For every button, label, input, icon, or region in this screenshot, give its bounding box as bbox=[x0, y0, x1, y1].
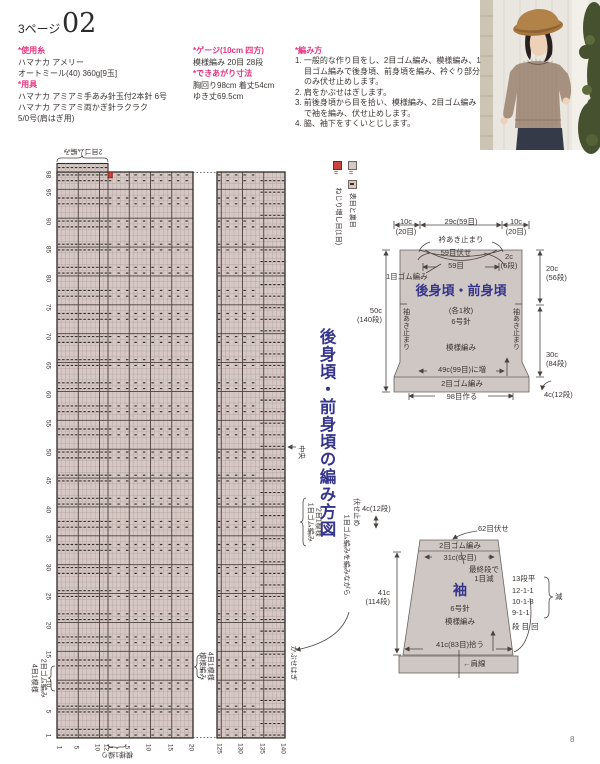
body-width-left: 10c bbox=[392, 217, 420, 226]
sleeve-dec-row: 10-1-8 bbox=[512, 597, 534, 606]
chart-axis-number: 1 bbox=[56, 738, 63, 756]
chart-axis-number: 1 bbox=[107, 738, 114, 756]
sleeve-title: 袖 bbox=[448, 585, 472, 596]
sleeve-height: 41c (114段) bbox=[354, 588, 390, 606]
chart-axis-number: 5 bbox=[73, 738, 80, 756]
body-armhole-left: 袖あき止まり bbox=[401, 308, 410, 350]
chart-axis-number: 80 bbox=[45, 270, 52, 288]
legend-increase-label: ねじり増し目(1目) bbox=[333, 179, 342, 253]
howto-step: 4. 脇、袖下をすくいとじします。 bbox=[295, 119, 481, 130]
gauge-header: *ゲージ(10cm 四方) bbox=[193, 45, 264, 56]
chart-axis-number: 20 bbox=[187, 738, 194, 756]
knitting-pattern-page: 3ページ 02 *使用糸 ハマナカ アメリー オートミール(40) 360g[9… bbox=[0, 0, 600, 764]
sleeve-shoulder-line: ←肩線 bbox=[463, 659, 486, 668]
chart-axis-number: 65 bbox=[45, 356, 52, 374]
legend-equals: = bbox=[349, 170, 353, 179]
design-number: 02 bbox=[62, 8, 96, 39]
yarn-line: ハマナカ アメリー bbox=[18, 57, 84, 68]
body-neck-band: 1目ゴム編み bbox=[386, 272, 428, 281]
howto-step: 3. 前後身頃から目を拾い、模様編み、2目ゴム編みで袖を編み、伏せ止めします。 bbox=[295, 98, 481, 119]
body-neck-open: 衿あき止まり bbox=[428, 235, 494, 244]
sleeve-pickup: 41c(83目)拾う bbox=[425, 640, 495, 649]
sleeve-dec-cols: 段 目 回 bbox=[512, 622, 539, 631]
chart-left-rib-repeat: 4目1模様 bbox=[29, 648, 38, 708]
purl-dash-icon bbox=[350, 183, 354, 184]
model-photo bbox=[480, 0, 600, 154]
sleeve-needle: 6号針 bbox=[438, 604, 482, 613]
chart-top-rib-label: 2目ゴム編み bbox=[58, 146, 108, 155]
increase-symbol-swatch bbox=[333, 161, 342, 170]
chart-axis-number: 45 bbox=[45, 472, 52, 490]
body-title: 後身頃・前身頃 bbox=[404, 285, 518, 296]
tools-header: *用具 bbox=[18, 79, 37, 90]
chart-bindoff-label2: 伏せ止め bbox=[351, 492, 360, 532]
chart-axis-number: 60 bbox=[45, 385, 52, 403]
size-line: 胸回り98cm 着丈54cm bbox=[193, 80, 274, 91]
body-neck-depth: 2c (6段) bbox=[492, 252, 526, 270]
sleeve-dec-row: 9-1-1 bbox=[512, 608, 530, 617]
sleeve-final-dec: 最終段で 1目減 bbox=[464, 565, 504, 583]
howto-header: *編み方 bbox=[295, 45, 322, 56]
legend-stitches-label: 表目と裏目 bbox=[347, 186, 356, 234]
chart-axis-number: 75 bbox=[45, 299, 52, 317]
legend-equals: = bbox=[334, 170, 338, 179]
howto-step: 1. 一般的な作り目をし、2目ゴム編み、模様編み、1目ゴム編みで後身頃、前身頃を… bbox=[295, 56, 481, 88]
tools-line: ハマナカ アミアミ手あみ針玉付2本針 6号 bbox=[18, 91, 167, 102]
sleeve-top-width: 31c(62目) bbox=[430, 553, 490, 562]
chart-axis-number: 40 bbox=[45, 501, 52, 519]
chart-axis-number: 135 bbox=[258, 739, 265, 757]
page-number: 8 bbox=[570, 735, 574, 744]
chart-axis-number: 85 bbox=[45, 241, 52, 259]
chart-axis-number: 90 bbox=[45, 212, 52, 230]
body-width-right2: (20目) bbox=[499, 227, 533, 236]
chart-axis-number: 125 bbox=[216, 739, 223, 757]
body-hem-height: 4c(12段) bbox=[544, 390, 573, 399]
body-neck-bindoff: 59目伏せ bbox=[432, 248, 480, 257]
chart-axis-number: 70 bbox=[45, 328, 52, 346]
chart-center-label: 中央 bbox=[296, 442, 305, 462]
body-neck-sts: 59目 bbox=[437, 261, 475, 270]
howto-steps: 1. 一般的な作り目をし、2目ゴム編み、模様編み、1目ゴム編みで後身頃、前身頃を… bbox=[295, 56, 481, 130]
tools-line: 5/0号(肩はぎ用) bbox=[18, 113, 74, 124]
howto-step: 2. 肩をかぶせはぎします。 bbox=[295, 88, 481, 99]
body-hem-band: 2目ゴム編み bbox=[433, 379, 491, 388]
chart-axis-number: 98 bbox=[45, 166, 52, 184]
sleeve-dec-row: 13段平 bbox=[512, 574, 535, 583]
tools-line: ハマナカ アミアミ両かぎ針ラクラク bbox=[18, 102, 148, 113]
chart-axis-number: 5 bbox=[124, 738, 131, 756]
chart-axis-number: 140 bbox=[279, 739, 286, 757]
size-header: *できあがり寸法 bbox=[193, 68, 252, 79]
chart-axis-number: 1 bbox=[45, 726, 52, 744]
body-width-right: 10c bbox=[502, 217, 530, 226]
chart-axis-number: 50 bbox=[45, 443, 52, 461]
body-needle: 6号針 bbox=[429, 317, 493, 326]
sleeve-band: 2目ゴム編み bbox=[432, 541, 488, 550]
body-height-left: 50c (140段) bbox=[350, 306, 382, 324]
size-line: ゆき丈69.5cm bbox=[193, 91, 243, 102]
chart-axis-number: 25 bbox=[45, 587, 52, 605]
sleeve-band-height: 4c(12段) bbox=[362, 504, 391, 513]
page-header: 3ページ bbox=[18, 20, 60, 37]
body-cast-on: 98目作る bbox=[437, 392, 487, 401]
body-pieces: (各1枚) bbox=[424, 306, 498, 315]
chart-axis-number: 130 bbox=[237, 739, 244, 757]
sleeve-dec-row: 12-1-1 bbox=[512, 586, 534, 595]
body-armhole-right: 袖あき止まり bbox=[511, 308, 520, 350]
body-hem-inc: 49c(99目)に増 bbox=[429, 365, 495, 374]
body-width-mid: 29c(59目) bbox=[425, 217, 497, 226]
chart-axis-number: 95 bbox=[45, 183, 52, 201]
sleeve-stitch: 模様編み bbox=[434, 617, 486, 626]
gauge-line: 模様編み 20目 28段 bbox=[193, 57, 263, 68]
chart-shoulder-label: かぶせはぎ bbox=[288, 641, 297, 685]
knit-symbol-swatch bbox=[348, 161, 357, 170]
chart-axis-number: 30 bbox=[45, 559, 52, 577]
chart-axis-number: 20 bbox=[45, 616, 52, 634]
body-height-bottom-right: 30c (84段) bbox=[546, 350, 582, 368]
chart-axis-number: 35 bbox=[45, 530, 52, 548]
body-stitch: 模様編み bbox=[427, 343, 495, 352]
chart-axis-number: 10 bbox=[94, 738, 101, 756]
yarn-header: *使用糸 bbox=[18, 45, 45, 56]
sleeve-bindoff: 62目伏せ bbox=[478, 524, 509, 533]
chart-axis-number: 10 bbox=[145, 738, 152, 756]
chart-title: 後身頃・前身頃の編み方図 bbox=[314, 328, 338, 538]
chart-axis-number: 5 bbox=[45, 703, 52, 721]
body-height-top-right: 20c (56段) bbox=[546, 264, 582, 282]
chart-axis-number: 15 bbox=[45, 645, 52, 663]
chart-axis-number: 10 bbox=[45, 674, 52, 692]
sleeve-dec-label: 減 bbox=[555, 592, 563, 601]
chart-bindoff-label: 1目ゴム編みを編みながら bbox=[341, 500, 350, 610]
chart-mid-pattern-repeat: 4目1模様 bbox=[205, 636, 214, 696]
body-width-left2: (20目) bbox=[389, 227, 423, 236]
chart-axis-number: 15 bbox=[166, 738, 173, 756]
yarn-line: オートミール(40) 360g[9玉] bbox=[18, 68, 117, 79]
chart-axis-number: 55 bbox=[45, 414, 52, 432]
